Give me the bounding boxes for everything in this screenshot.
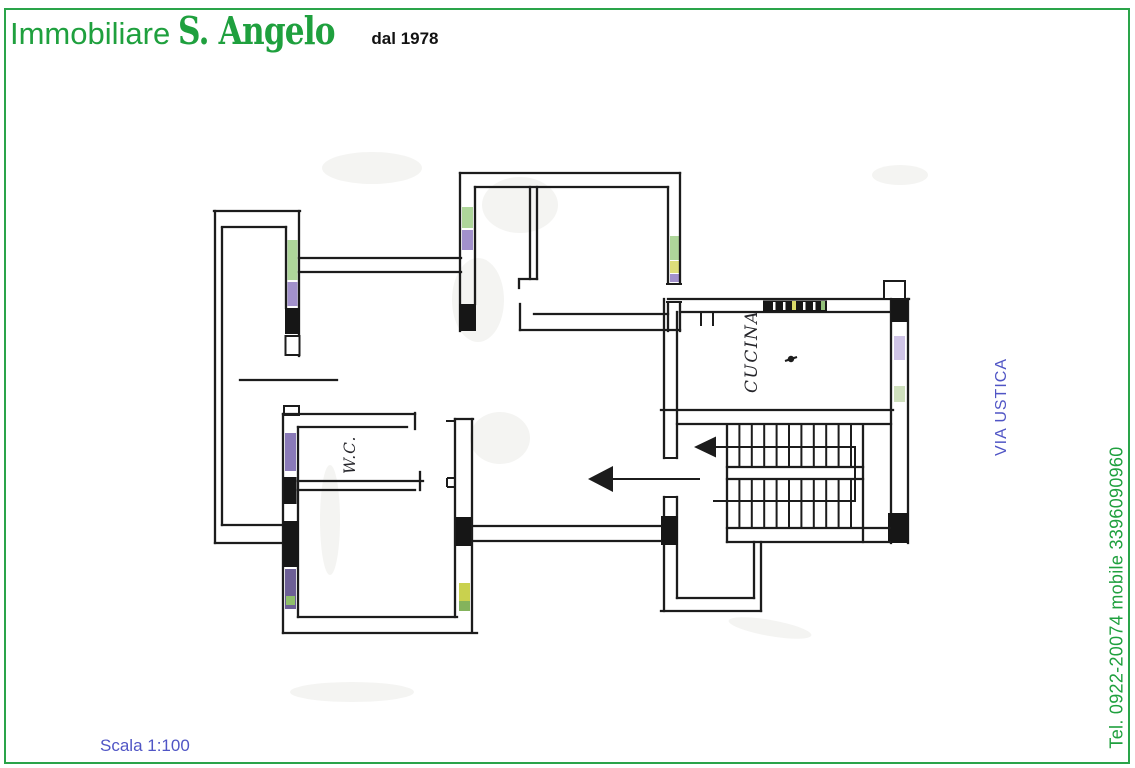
scanned-flyer-page: Immobiliare S. Angelo dal 1978 <box>0 0 1135 768</box>
stair-treads-lower <box>739 480 851 528</box>
floor-plan-drawing: CUCINA <box>0 0 1135 768</box>
street-name-label: VIA USTICA <box>993 352 1011 462</box>
entrance-direction-arrow <box>588 466 700 492</box>
kitchen-label: CUCINA <box>742 310 762 393</box>
upper-corridor-wall <box>240 258 461 380</box>
agency-phone-label: Tel. 0922-20074 mobile 3396090960 <box>1107 428 1128 768</box>
kitchen-window <box>763 301 827 312</box>
wc-room-block: W.C. <box>283 406 477 633</box>
asterisk-mark <box>785 356 797 362</box>
stairs-direction-arrow <box>694 437 855 502</box>
plan-scale-label: Scala 1:100 <box>100 736 190 756</box>
staircase <box>661 299 893 611</box>
wc-label: W.C. <box>341 436 359 474</box>
